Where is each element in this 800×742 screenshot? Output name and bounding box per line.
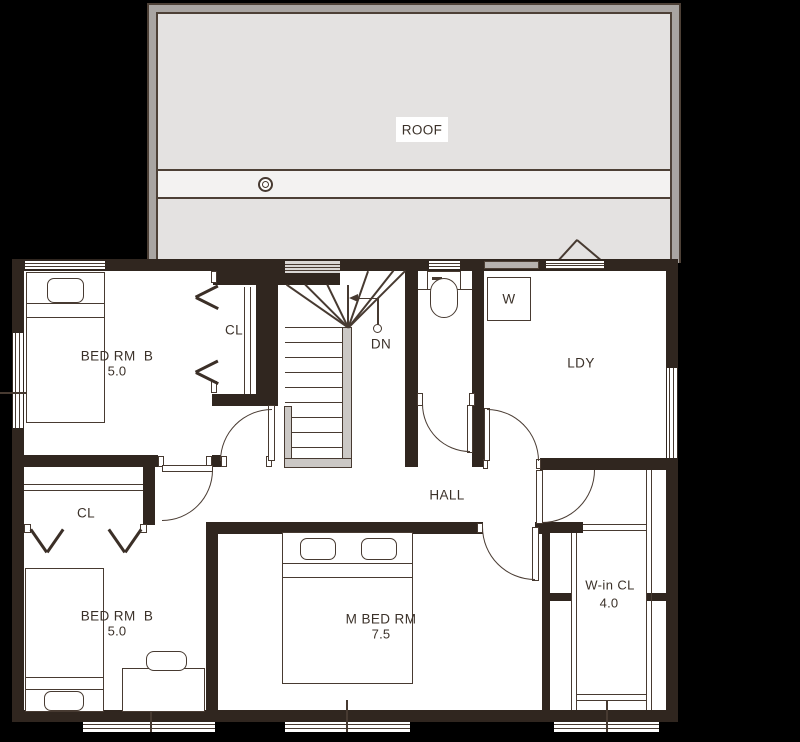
wic-rod [646,470,647,710]
wall-exterior-left [12,259,24,722]
window-masterbed-south [285,722,410,732]
window-laundry-north-frosted [484,261,539,269]
wic-rod [583,530,647,531]
window-toilet-north [429,261,460,269]
window-bedroom-bottom-south [83,722,215,732]
wall-exterior-right [666,259,678,722]
roof-label: ROOF [402,123,443,137]
label-closet-bottom: CL [77,506,95,520]
label-bedroom-top-area: 5.0 [108,365,127,378]
label-stairs-down: DN [371,337,391,351]
label-bedroom-bottom-area: 5.0 [108,625,127,638]
stair-tread [292,417,342,418]
wic-shelf [577,694,646,695]
wall-wic-stub-west [542,593,572,601]
closet-bottom-shelf [24,484,143,485]
window-tick [346,700,348,732]
wall-toilet-west [405,271,418,467]
stair-tread [292,432,342,433]
label-washer: W [502,292,515,306]
floor-plan: ROOF [0,0,800,742]
desk [122,668,205,712]
wall-wic-west [542,522,550,712]
stair-down-arrow-line [356,298,378,300]
label-laundry: LDY [567,356,594,370]
wall-bedroom-top-south [12,455,158,467]
stair-tread [285,327,342,328]
wall-toilet-east [472,271,484,467]
wall-exterior-bottom [12,710,678,722]
bed-line [26,317,105,318]
label-wic-name: W-in CL [585,579,635,592]
stair-tread [285,357,342,358]
label-masterbed-area: 7.5 [372,628,391,641]
closet-top-partition [244,287,245,394]
stair-rail [342,327,352,468]
toilet-bowl-icon [430,278,458,318]
stair-down-start-icon [373,324,382,333]
wic-rod [571,533,572,710]
roof-band [158,169,670,199]
window-tick [606,700,608,732]
pillow-icon [47,278,84,303]
pillow-icon [361,538,397,560]
closet-bottom-shelf [24,490,143,491]
wall-masterbed-west [206,522,218,712]
bed-line [282,577,413,578]
bed-line [25,677,104,678]
stair-curb-south [284,458,352,468]
pillow-icon [44,691,84,711]
bed-line [282,563,413,564]
label-bedroom-top-name: BED RM B [81,349,154,363]
closet-top-partition [250,287,251,394]
pillow-icon [300,538,336,560]
wic-shelf [577,700,646,701]
stair-tread [285,387,342,388]
roof-vent-dot-icon [262,181,269,188]
label-bedroom-bottom-name: BED RM B [81,609,154,623]
window-laundry-east [667,368,677,458]
wic-rod [576,533,577,710]
label-closet-top: CL [225,323,243,337]
wic-rod [651,470,652,710]
chair [146,651,187,671]
closet-top-frame [211,271,217,283]
window-stairwell-north [285,261,340,273]
label-wic-area: 4.0 [600,597,619,610]
stair-winder-line [347,285,349,327]
stair-down-arrow-line [377,298,379,325]
wall-closet-bottom-east [143,467,155,525]
wic-rod [583,524,647,525]
stair-tread [285,342,342,343]
label-masterbed-name: M BED RM [346,612,417,626]
wall-stairwell-west [256,285,278,406]
bed-line [26,303,105,304]
window-bedroom-top-west [13,333,23,428]
wall-wic-stub-north [550,522,583,533]
window-bedroom-top-north [25,261,105,269]
window-laundry-north-louver [546,261,604,269]
label-hall: HALL [429,488,464,502]
stair-tread [285,372,342,373]
wall-laundry-south [540,458,678,470]
stair-tread [292,447,342,448]
stair-tread [285,402,342,403]
